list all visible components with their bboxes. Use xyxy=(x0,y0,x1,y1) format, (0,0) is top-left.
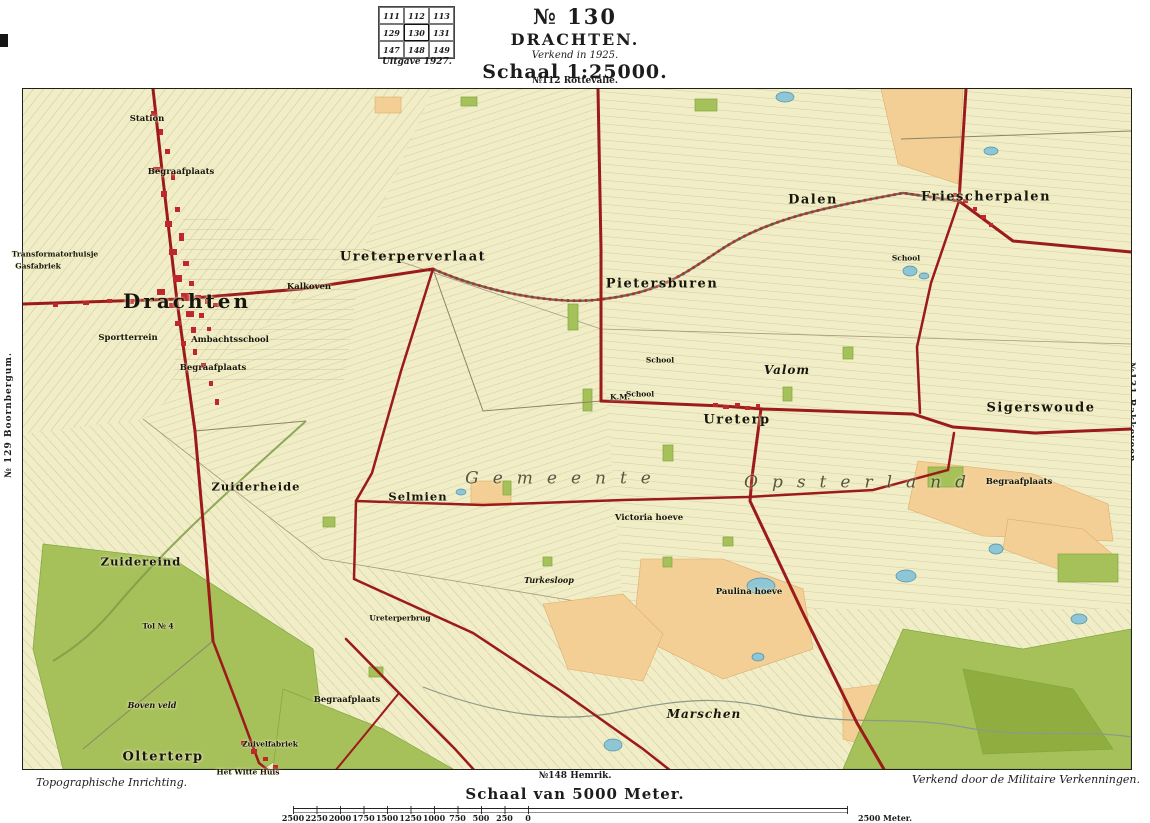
index-grid-cell-129: 129 xyxy=(379,24,404,41)
scalebar: 2500 Meter. 2500225020001750150012501000… xyxy=(293,801,913,823)
index-grid-cell-147: 147 xyxy=(379,41,404,58)
adjacent-sheet-left: № 129 Boornbergum. xyxy=(4,352,14,478)
scalebar-tick-500: 500 xyxy=(473,813,490,823)
map-frame xyxy=(22,88,1132,770)
scalebar-tick-750: 750 xyxy=(449,813,466,823)
index-grid-cell-130: 130 xyxy=(404,24,429,41)
map-canvas xyxy=(23,89,1131,769)
scalebar-end-label: 2500 Meter. xyxy=(858,813,912,823)
scalebar-tick-1750: 1750 xyxy=(352,813,374,823)
map-sheet-page: № 130 DRACHTEN. Verkend in 1925. Schaal … xyxy=(0,0,1150,823)
index-grid-caption: Uitgave 1927. xyxy=(372,57,462,67)
index-grid-cells: 111112113129130131147148149 xyxy=(378,6,455,59)
scalebar-tick-250: 250 xyxy=(496,813,513,823)
scalebar-tick-1000: 1000 xyxy=(423,813,445,823)
index-grid-cell-113: 113 xyxy=(429,7,454,24)
scalebar-tick-2250: 2250 xyxy=(305,813,327,823)
index-grid-cell-112: 112 xyxy=(404,7,429,24)
surveyed-note: Verkend in 1925. xyxy=(0,50,1150,61)
index-grid-cell-111: 111 xyxy=(379,7,404,24)
scalebar-tick-2500: 2500 xyxy=(282,813,304,823)
adjacent-sheet-top: №112 Rottevalle. xyxy=(0,76,1150,86)
scalebar-tick-1250: 1250 xyxy=(399,813,421,823)
index-grid-cell-149: 149 xyxy=(429,41,454,58)
scalebar-tick-1500: 1500 xyxy=(376,813,398,823)
scalebar-tick-2000: 2000 xyxy=(329,813,351,823)
index-grid-cell-131: 131 xyxy=(429,24,454,41)
scalebar-tick-0: 0 xyxy=(525,813,531,823)
sheet-title: DRACHTEN. xyxy=(0,30,1150,49)
index-grid-cell-148: 148 xyxy=(404,41,429,58)
sheet-number: № 130 xyxy=(0,4,1150,29)
